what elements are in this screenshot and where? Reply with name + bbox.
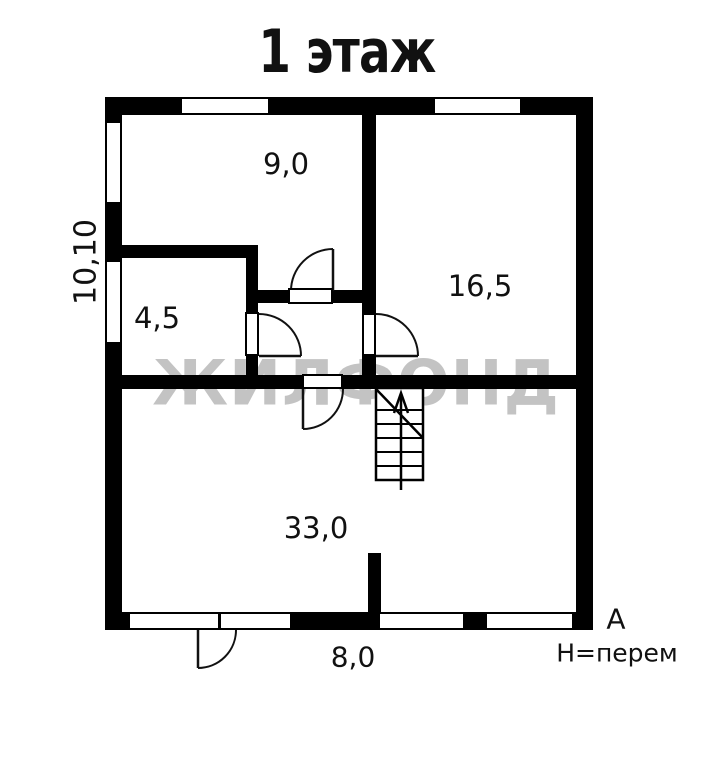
height-note: Н=перем (556, 639, 678, 668)
room-area-16-5: 16,5 (448, 269, 513, 303)
threshold-room33-door (302, 374, 343, 389)
door-swing-room9 (291, 249, 333, 291)
door-swing-room33 (303, 389, 343, 429)
threshold-room9-door (288, 288, 333, 304)
dimension-left: 10,10 (69, 219, 104, 305)
room-area-4-5: 4,5 (134, 301, 180, 335)
threshold-room45-door (245, 312, 259, 356)
floor-plan: ЖИЛФОНД (0, 0, 713, 768)
dimension-bottom: 8,0 (331, 641, 376, 674)
room-area-9: 9,0 (263, 147, 309, 181)
stairs-symbol (376, 388, 423, 490)
door-swing-room45 (259, 314, 301, 356)
room-area-33: 33,0 (284, 511, 349, 545)
door-swing-room165 (376, 314, 418, 356)
threshold-room165-door (362, 313, 376, 356)
door-swing-entrance (198, 630, 236, 668)
axis-label: А (606, 603, 625, 636)
page-title: 1 этаж (258, 17, 435, 87)
